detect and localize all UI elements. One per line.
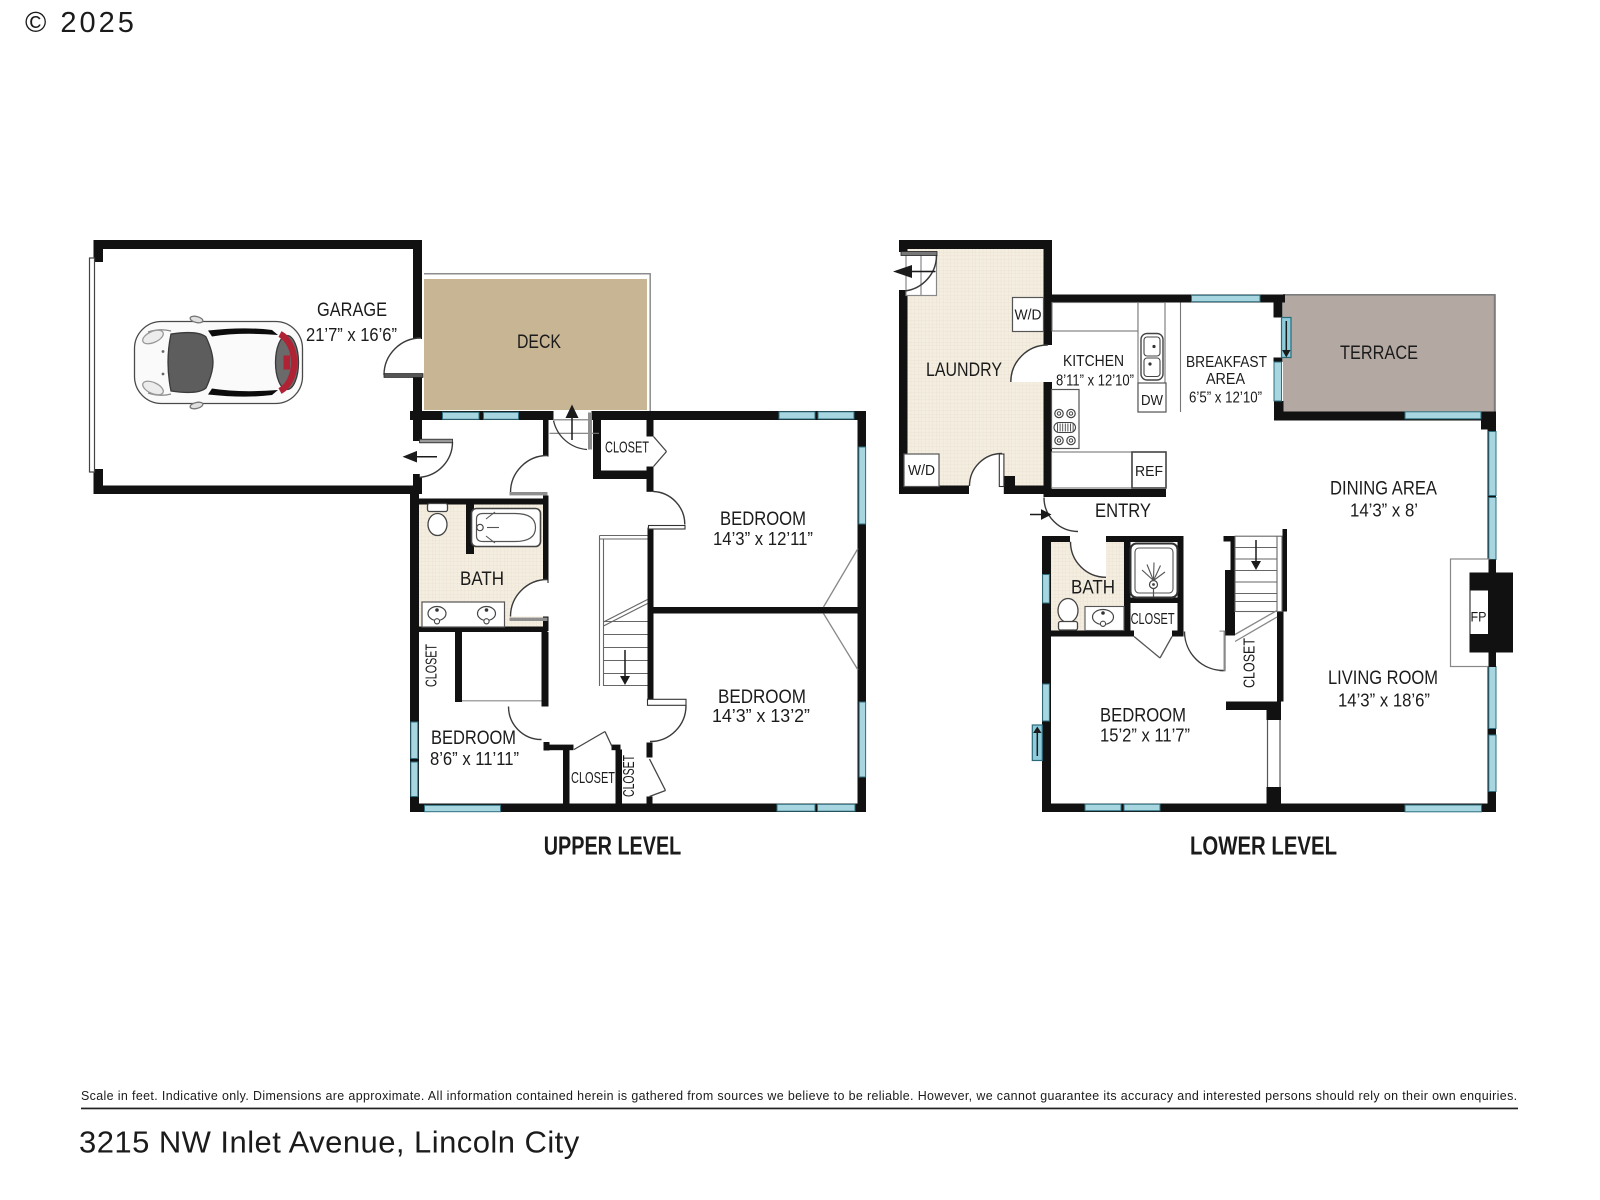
svg-text:6’5” x 12’10”: 6’5” x 12’10” [1189,390,1262,407]
svg-text:W/D: W/D [908,463,935,479]
svg-text:14’3” x 18’6”: 14’3” x 18’6” [1338,691,1430,711]
svg-text:CLOSET: CLOSET [605,440,649,457]
svg-text:LIVING ROOM: LIVING ROOM [1328,668,1438,689]
svg-text:14’3” x 12’11”: 14’3” x 12’11” [713,529,813,549]
svg-text:UPPER LEVEL: UPPER LEVEL [544,831,682,861]
svg-text:14’3” x 13’2”: 14’3” x 13’2” [712,706,810,726]
svg-text:W/D: W/D [1015,308,1042,324]
svg-text:LOWER LEVEL: LOWER LEVEL [1190,831,1337,861]
svg-text:CLOSET: CLOSET [571,770,615,787]
svg-text:REF: REF [1135,463,1163,480]
svg-text:BATH: BATH [460,569,504,590]
svg-text:AREA: AREA [1206,371,1245,388]
svg-text:BEDROOM: BEDROOM [718,687,806,708]
svg-text:3215 NW Inlet Avenue, Lincoln: 3215 NW Inlet Avenue, Lincoln City [79,1125,580,1160]
svg-text:GARAGE: GARAGE [317,300,387,321]
svg-text:BEDROOM: BEDROOM [720,509,806,530]
svg-text:BEDROOM: BEDROOM [1100,706,1186,727]
svg-text:8’6” x 11’11”: 8’6” x 11’11” [430,749,519,769]
svg-text:CLOSET: CLOSET [621,755,638,797]
svg-text:CLOSET: CLOSET [424,644,441,687]
svg-text:BEDROOM: BEDROOM [431,728,516,749]
svg-text:8’11” x 12’10”: 8’11” x 12’10” [1056,373,1134,390]
svg-text:© 2025: © 2025 [25,7,137,39]
svg-text:DW: DW [1141,392,1164,409]
svg-text:TERRACE: TERRACE [1340,343,1418,364]
svg-text:DINING AREA: DINING AREA [1330,479,1437,500]
svg-text:21’7” x 16’6”: 21’7” x 16’6” [306,325,397,345]
svg-text:15’2” x 11’7”: 15’2” x 11’7” [1100,726,1190,746]
svg-text:FP: FP [1471,610,1487,625]
svg-text:CLOSET: CLOSET [1242,638,1259,688]
svg-text:14’3” x 8’: 14’3” x 8’ [1350,501,1418,521]
svg-text:LAUNDRY: LAUNDRY [926,360,1002,381]
svg-text:DECK: DECK [517,332,561,353]
svg-text:BREAKFAST: BREAKFAST [1186,354,1267,371]
svg-text:Scale in feet. Indicative only: Scale in feet. Indicative only. Dimensio… [81,1089,1517,1103]
svg-text:ENTRY: ENTRY [1095,501,1151,522]
svg-text:CLOSET: CLOSET [1131,611,1175,628]
svg-text:KITCHEN: KITCHEN [1063,353,1124,370]
svg-text:BATH: BATH [1071,578,1115,599]
